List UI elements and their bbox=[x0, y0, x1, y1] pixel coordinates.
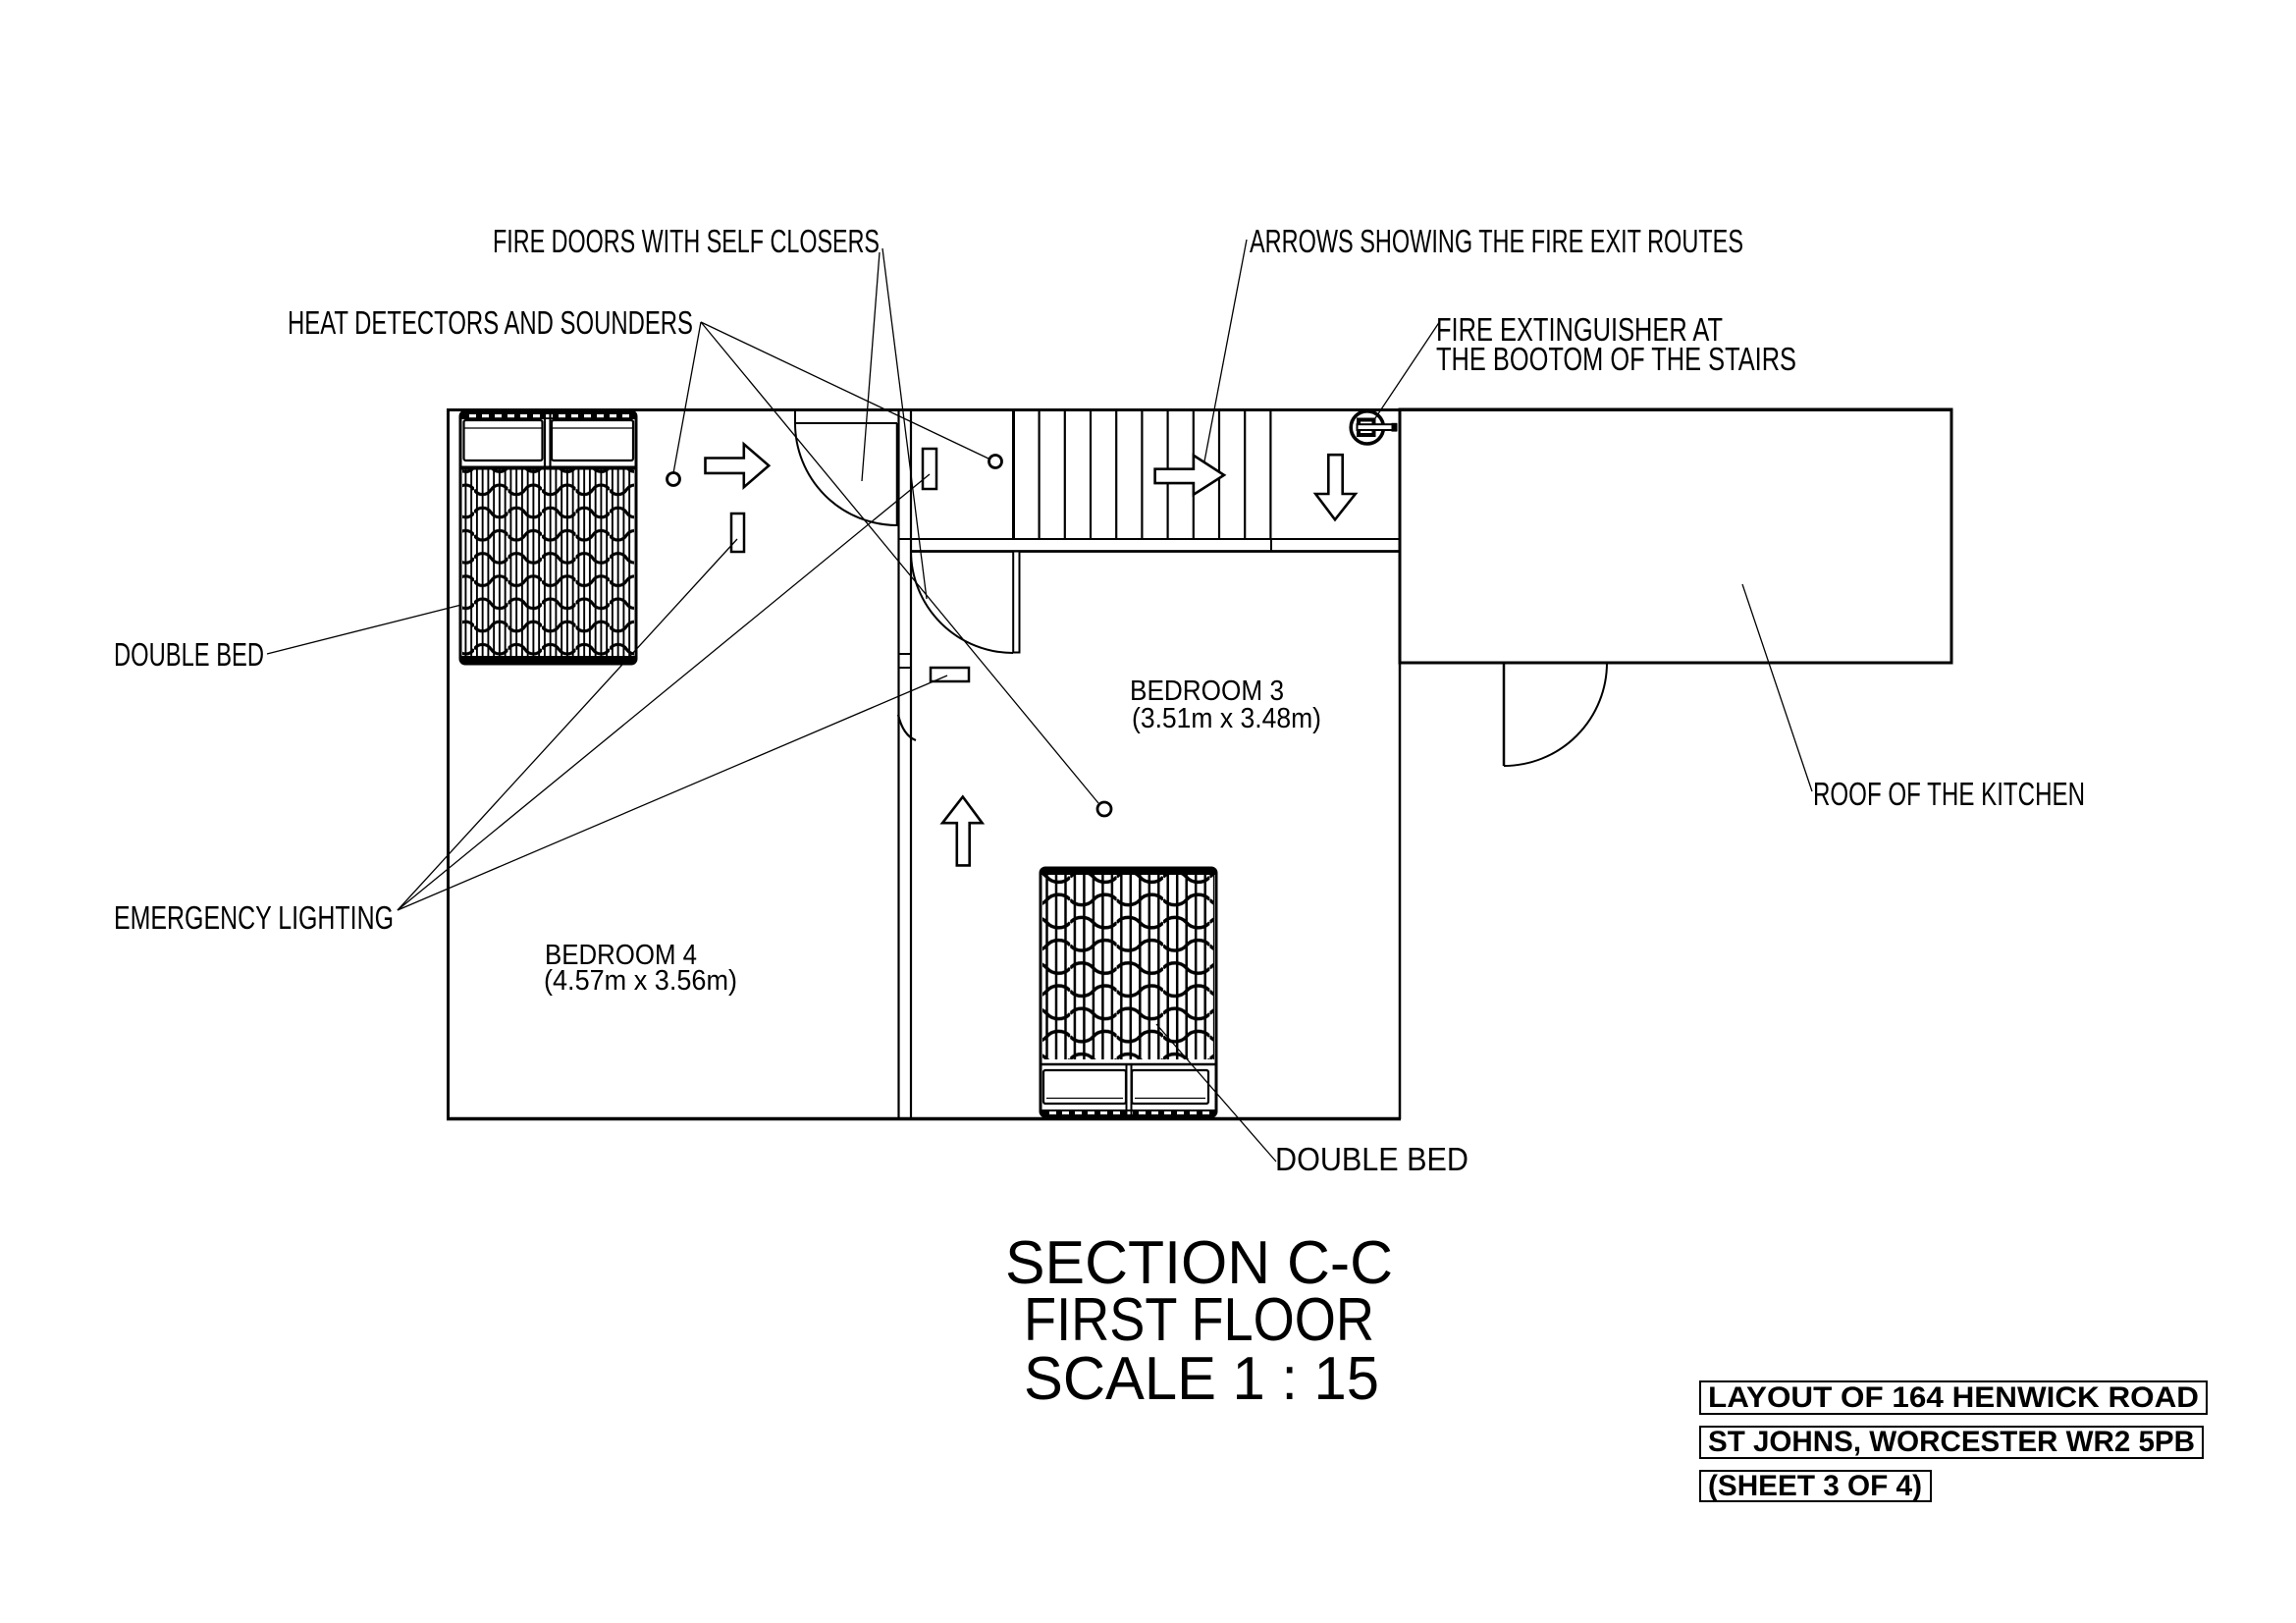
svg-text:LAYOUT OF 164 HENWICK ROAD: LAYOUT OF 164 HENWICK ROAD bbox=[1708, 1381, 2199, 1414]
svg-text:(3.51m x 3.48m): (3.51m x 3.48m) bbox=[1132, 703, 1321, 734]
svg-text:DOUBLE BED: DOUBLE BED bbox=[114, 636, 264, 673]
svg-text:ROOF OF THE KITCHEN: ROOF OF THE KITCHEN bbox=[1813, 776, 2085, 812]
svg-text:FIRE DOORS WITH SELF CLOSERS: FIRE DOORS WITH SELF CLOSERS bbox=[493, 223, 880, 259]
svg-text:THE BOOTOM OF THE STAIRS: THE BOOTOM OF THE STAIRS bbox=[1436, 341, 1796, 377]
svg-text:FIRST FLOOR: FIRST FLOOR bbox=[1024, 1286, 1374, 1354]
svg-text:ARROWS SHOWING THE FIRE EXIT R: ARROWS SHOWING THE FIRE EXIT ROUTES bbox=[1250, 223, 1743, 259]
svg-text:(4.57m x 3.56m): (4.57m x 3.56m) bbox=[544, 965, 737, 997]
svg-text:SCALE 1 : 15: SCALE 1 : 15 bbox=[1024, 1345, 1379, 1413]
svg-text:HEAT DETECTORS AND SOUNDERS: HEAT DETECTORS AND SOUNDERS bbox=[288, 304, 693, 341]
svg-text:DOUBLE BED: DOUBLE BED bbox=[1275, 1141, 1468, 1177]
svg-text:EMERGENCY LIGHTING: EMERGENCY LIGHTING bbox=[114, 899, 394, 936]
svg-text:(SHEET 3 OF 4): (SHEET 3 OF 4) bbox=[1708, 1470, 1922, 1502]
svg-text:ST JOHNS, WORCESTER WR2 5PB: ST JOHNS, WORCESTER WR2 5PB bbox=[1708, 1426, 2195, 1458]
